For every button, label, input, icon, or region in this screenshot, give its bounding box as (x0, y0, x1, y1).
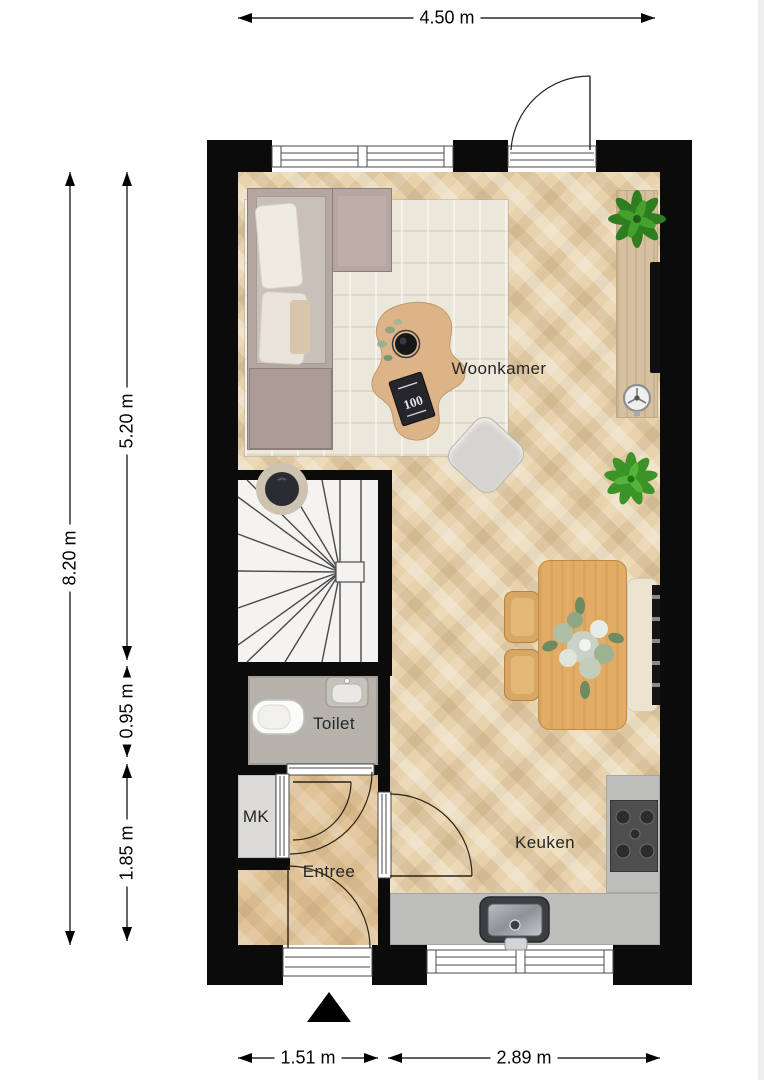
room-label-toilet: Toilet (313, 714, 355, 734)
exterior-wall-top (453, 140, 508, 172)
interior-wall-vertical (378, 470, 392, 676)
interior-wall-toilet-bottom (238, 765, 288, 775)
dining-table (538, 560, 627, 730)
staircase-floor (238, 480, 378, 662)
exterior-wall-bottom (207, 945, 283, 985)
interior-wall-vertical (378, 676, 390, 793)
exterior-wall-bottom (372, 945, 427, 985)
window-top (272, 146, 453, 167)
staircase-wall-bottom (238, 662, 392, 676)
mk-wall-bottom (238, 858, 290, 870)
room-label-entree: Entree (303, 862, 356, 882)
entrance-marker (307, 992, 351, 1022)
exterior-wall-left (207, 140, 238, 985)
room-label-woonkamer: Woonkamer (452, 359, 547, 379)
room-label-mk: MK (243, 807, 269, 827)
sofa-ottoman (249, 368, 332, 449)
dim-height-toilet: 0.95 m (116, 677, 139, 744)
kitchen-counter-bottom (390, 893, 660, 945)
dim-height-total: 8.20 m (59, 524, 82, 591)
toilet-wall-left (238, 676, 248, 775)
exterior-wall-top (207, 140, 272, 172)
interior-wall-vertical (378, 877, 390, 945)
dining-chair-cushion (511, 656, 534, 694)
dining-chair-cushion (511, 598, 534, 636)
sofa-pillow (254, 202, 303, 289)
sofa-chaise-cushion (338, 196, 386, 266)
floor-plan-page: 100 (0, 0, 764, 1080)
dim-height-living: 5.20 m (116, 387, 139, 454)
room-label-keuken: Keuken (515, 833, 575, 853)
exterior-wall-right (660, 140, 692, 985)
sofa-throw-blanket (290, 300, 310, 354)
dim-height-entree: 1.85 m (116, 819, 139, 886)
window-kitchen (427, 950, 613, 973)
stove (610, 800, 658, 872)
exterior-wall-bottom (613, 945, 692, 985)
dim-width-total: 4.50 m (413, 7, 480, 30)
dim-width-entree: 1.51 m (274, 1047, 341, 1070)
staircase-wall-top (238, 470, 392, 480)
dim-width-kitchen: 2.89 m (490, 1047, 557, 1070)
interior-wall-toilet-bottom (372, 765, 390, 775)
balcony-door (508, 76, 596, 167)
